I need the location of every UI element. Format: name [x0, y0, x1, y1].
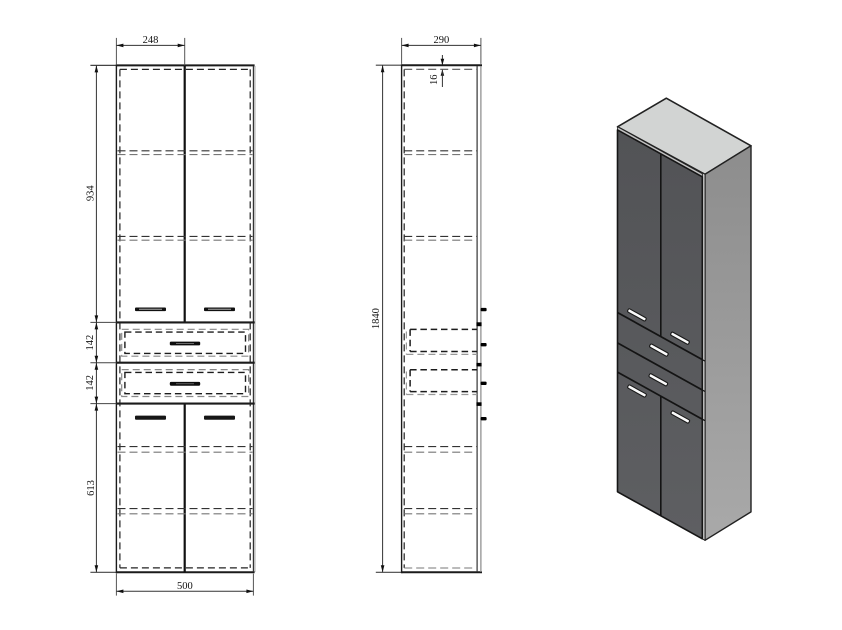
svg-text:934: 934: [85, 185, 96, 202]
svg-text:613: 613: [86, 480, 97, 496]
svg-text:16: 16: [429, 74, 440, 85]
svg-text:290: 290: [434, 35, 450, 46]
svg-text:142: 142: [85, 335, 96, 351]
svg-text:248: 248: [143, 35, 159, 46]
svg-text:142: 142: [85, 375, 96, 391]
svg-text:1840: 1840: [371, 308, 382, 329]
svg-text:500: 500: [177, 581, 193, 592]
